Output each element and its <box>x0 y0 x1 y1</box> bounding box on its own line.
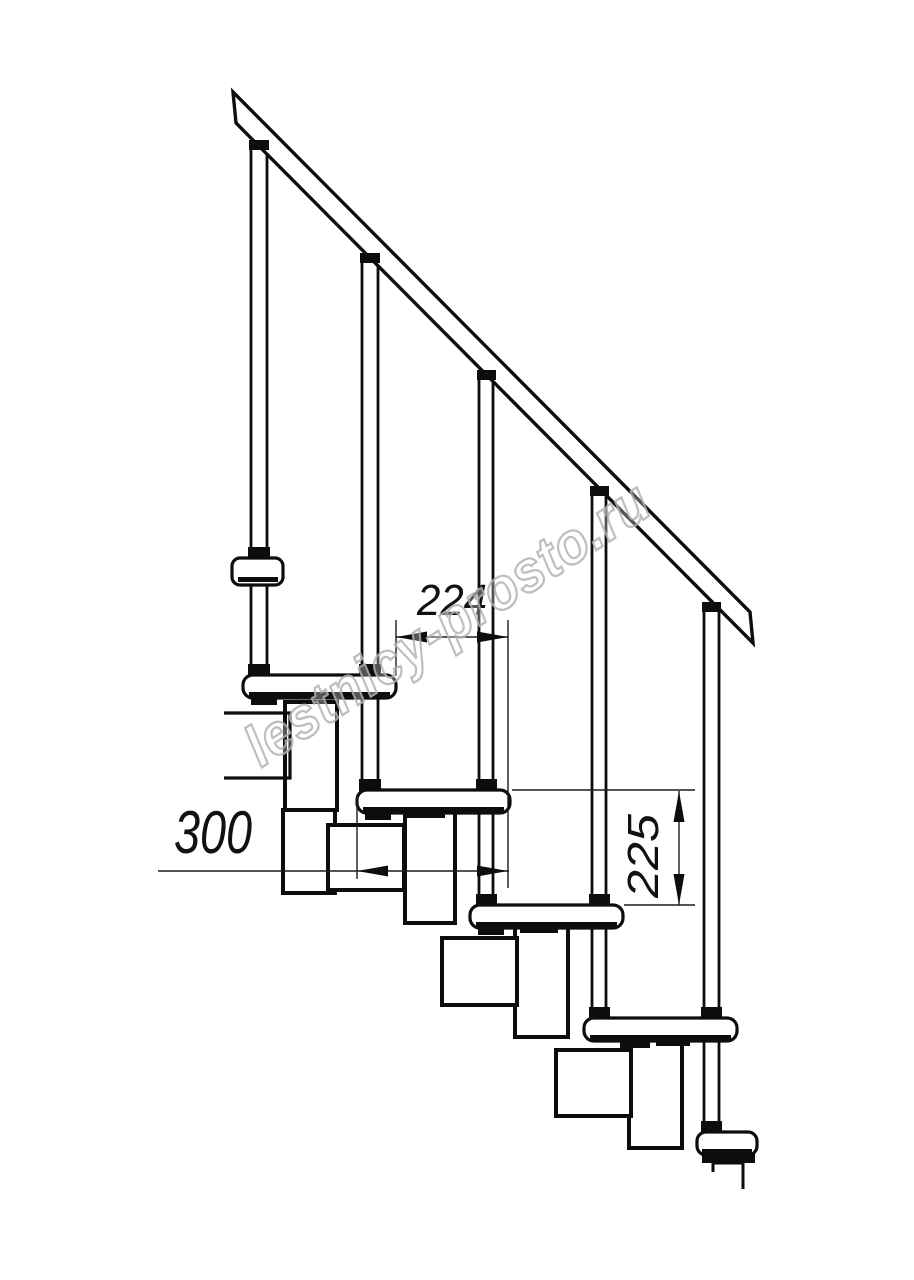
module-clamp-box <box>328 825 404 890</box>
tread-foot <box>520 927 558 933</box>
baluster-5 <box>704 609 719 1134</box>
baluster-4 <box>592 493 606 1020</box>
bottom-break-line <box>713 1163 743 1189</box>
dimension-label-300: 300 <box>174 799 252 866</box>
module-clamp-box <box>442 938 517 1005</box>
module-box <box>629 1040 682 1148</box>
tread-foot <box>620 1040 650 1048</box>
dimension-label-225: 225 <box>619 813 668 899</box>
tread-4-edge <box>476 922 617 927</box>
module-clamp-box <box>556 1050 631 1116</box>
baluster-cap <box>249 140 269 150</box>
tread-5-edge <box>590 1035 731 1040</box>
arrowhead-up <box>674 791 685 822</box>
technical-drawing: 224 300 225 lestnicy-prosto.ru <box>0 0 914 1280</box>
tread-6-edge <box>702 1149 752 1154</box>
tread-3-edge <box>363 807 504 812</box>
baluster-cap <box>360 253 380 263</box>
arrowhead-down <box>674 874 685 905</box>
baluster-cap <box>702 602 721 612</box>
module-box <box>515 927 568 1037</box>
baluster-cap <box>477 370 496 380</box>
module-box <box>405 812 455 923</box>
baluster-3 <box>479 377 493 907</box>
tread-foot <box>365 812 391 820</box>
tread-foot <box>478 927 504 935</box>
tread-foot <box>656 1040 690 1046</box>
tread-foot <box>407 812 445 818</box>
tread-1-edge <box>238 577 278 582</box>
baluster-1 <box>251 148 267 678</box>
